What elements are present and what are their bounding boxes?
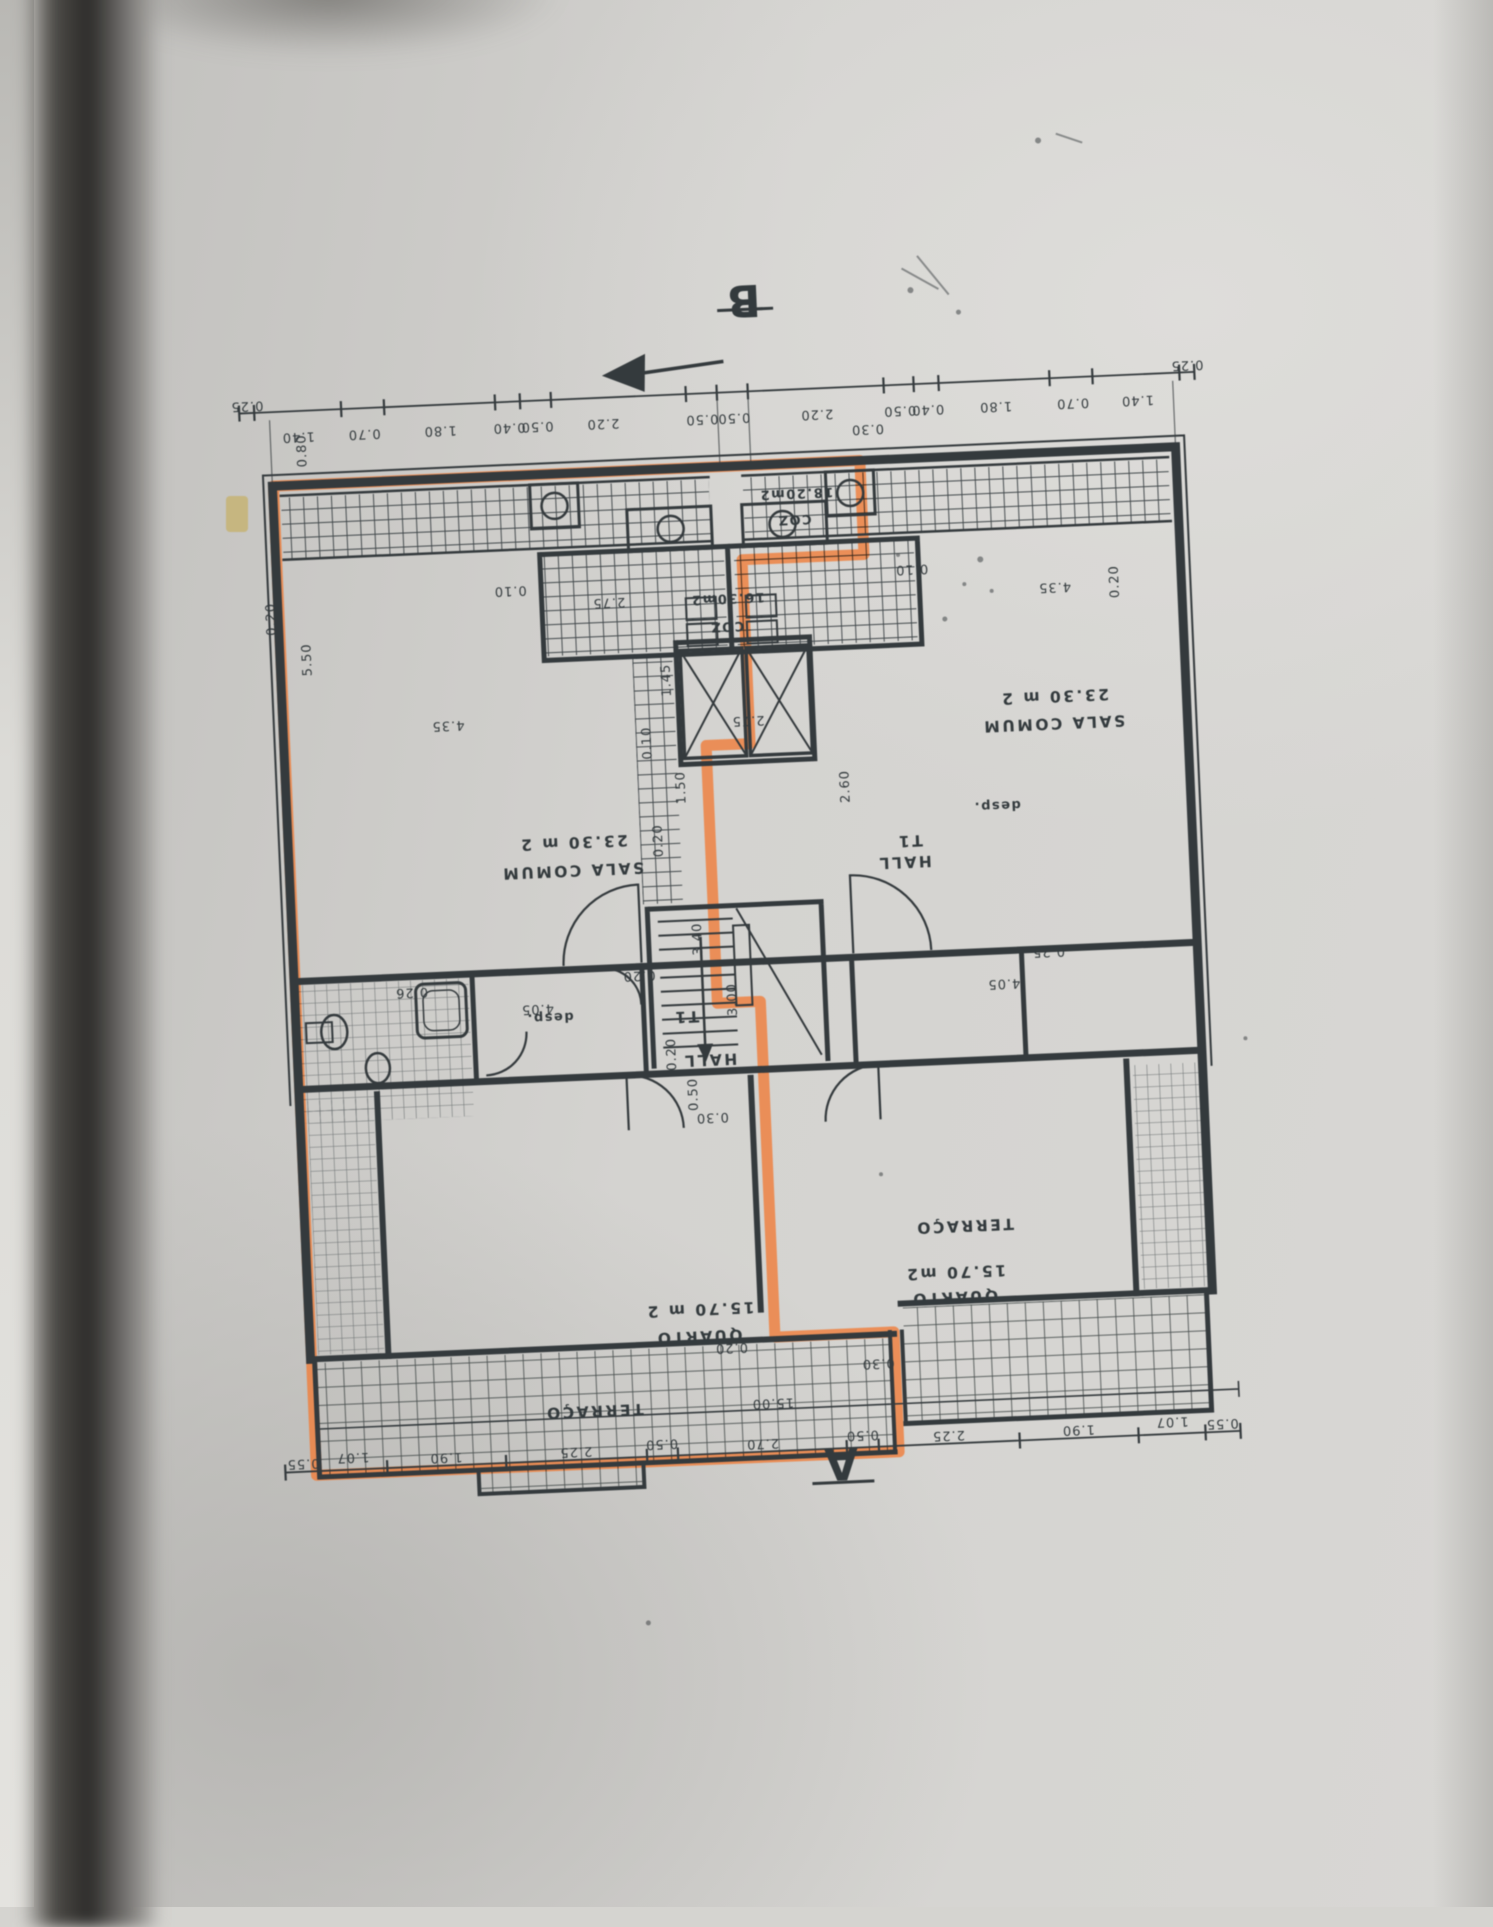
room-label-desp-left: desp. [526,1009,574,1026]
chain-dimension: 2.25 [559,1443,593,1459]
floor-plan-drawing: 0.251.400.701.800.400.502.200.500.502.20… [0,0,1493,1907]
room-label-hall-left: HALL [682,1049,737,1069]
section-marker-b: B [726,274,762,326]
chain-dimension: 1.80 [423,422,457,438]
svg-text:2.60: 2.60 [837,770,853,804]
svg-text:0.30: 0.30 [696,1109,730,1125]
svg-text:1.50: 1.50 [673,771,689,805]
chain-dimension: 0.50 [717,409,751,425]
stairs [657,905,821,1064]
room-label-terraco-right: TERRAÇO [914,1215,1014,1237]
chain-dimension: 0.40 [911,401,945,417]
chain-dimension: 0.25 [1170,356,1204,372]
chain-dimension: 1.90 [429,1449,463,1465]
svg-text:0.10: 0.10 [895,561,929,577]
room-area-sala-right: 23.30 m 2 [999,685,1109,708]
chain-dimension: 2.20 [800,406,834,422]
svg-text:3.00: 3.00 [725,983,741,1017]
chain-dimension: 1.80 [979,398,1013,414]
svg-text:0.20: 0.20 [622,967,656,983]
chain-dimension: 0.50 [685,411,719,427]
svg-text:0.20: 0.20 [651,824,667,858]
svg-text:0.30: 0.30 [861,1355,895,1371]
svg-text:5.50: 5.50 [299,643,315,677]
chain-dimension: 1.90 [1062,1421,1096,1437]
chain-dimension: 1.40 [1121,392,1155,408]
chain-dimension: 0.70 [1056,395,1090,411]
chain-dimension: 0.70 [347,425,381,441]
svg-text:2.75: 2.75 [731,712,765,728]
room-area-quarto-left: 15.70 m 2 [645,1298,755,1321]
svg-text:0.30: 0.30 [851,420,885,436]
svg-text:2.75: 2.75 [592,594,626,610]
svg-text:3.40: 3.40 [690,922,706,956]
chain-dimension: 0.50 [520,418,554,434]
svg-text:0.10: 0.10 [639,726,655,760]
room-label-desp-right: desp. [973,797,1021,814]
tape-mark [226,496,248,532]
north-arrow-icon [601,350,725,393]
unit-type-right: T1 [896,831,923,850]
room-label-hall-right: HALL [877,852,932,872]
total-dimension: 15.00 [751,1394,794,1411]
svg-text:0.20: 0.20 [264,603,280,637]
svg-text:0.80: 0.80 [294,434,310,468]
chain-dimension: 2.70 [746,1435,780,1451]
chain-dimension: 0.25 [230,398,264,414]
room-label-sala-right: SALA COMUM [981,711,1125,735]
chain-dimension: 2.25 [932,1427,966,1443]
svg-text:0.20: 0.20 [1107,565,1123,599]
svg-text:0.25: 0.25 [1032,943,1066,959]
room-label-coz-left: COZ [709,618,744,634]
svg-text:0.20: 0.20 [664,1038,680,1072]
svg-text:4.35: 4.35 [431,717,465,733]
room-label-quarto-right: QUARTO [910,1286,998,1308]
room-label-sala-left: SALA COMUM [500,858,644,882]
chain-dimension: 0.55 [1205,1415,1239,1431]
room-area-quarto-right: 15.70 m2 [904,1261,1006,1283]
svg-text:0.10: 0.10 [493,582,527,598]
svg-text:1.45: 1.45 [659,663,675,697]
chain-dimension: 0.55 [286,1455,320,1471]
svg-text:0.50: 0.50 [686,1078,702,1112]
chain-dimension: 2.20 [586,415,620,431]
svg-text:4.05: 4.05 [987,975,1021,991]
room-label-coz-right: COZ [777,511,812,527]
room-label-quarto-left: QUARTO [655,1326,743,1348]
photo-of-floor-plan: { "plan": { "markers": { "a": "A", "b": … [0,0,1493,1907]
unit-type-left: T1 [672,1007,699,1026]
svg-text:0.26: 0.26 [395,984,429,1000]
room-area-sala-left: 23.30 m 2 [518,831,628,854]
chain-dimension: 0.50 [645,1435,679,1451]
chain-dimension: 1.07 [1155,1413,1189,1429]
svg-text:4.35: 4.35 [1038,578,1072,594]
chain-dimension: 1.07 [336,1449,370,1465]
